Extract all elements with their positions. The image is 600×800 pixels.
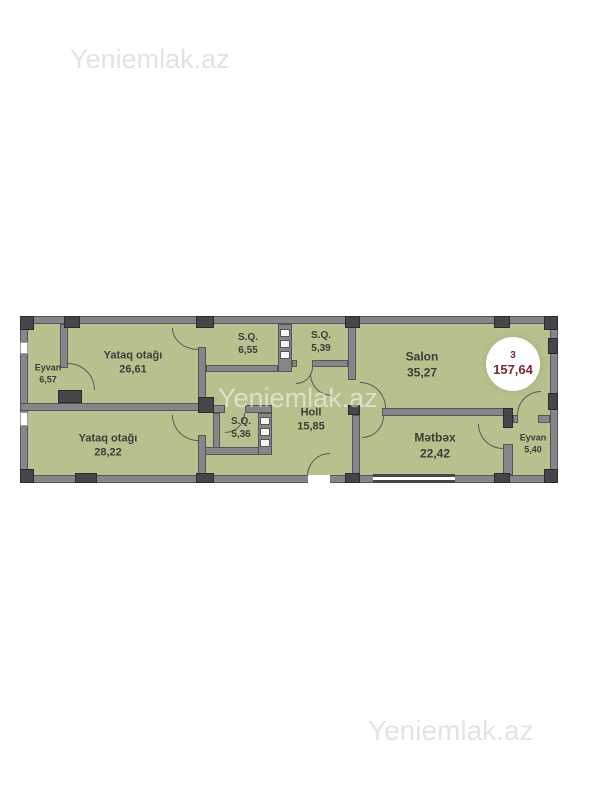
- wall-segment: [352, 415, 360, 475]
- room-label-sq-3: S.Q. 5,36: [231, 415, 251, 441]
- room-name: Eyvan: [520, 432, 547, 444]
- room-label-sq-1: S.Q. 6,55: [238, 331, 258, 357]
- duct-box: [280, 340, 290, 348]
- floor-number: 3: [510, 350, 516, 362]
- room-area: 35,27: [407, 365, 437, 381]
- wall-pillar: [20, 469, 34, 483]
- room-label-eyvan-right: Eyvan 5,40: [520, 432, 547, 455]
- duct-box: [280, 351, 290, 359]
- wall-segment: [503, 444, 513, 475]
- room-area: 15,85: [297, 420, 325, 434]
- wall-pillar: [544, 469, 558, 483]
- room-name: S.Q.: [311, 329, 331, 342]
- window-marker: [20, 412, 28, 426]
- room-area: 6,57: [39, 374, 57, 386]
- wall-segment: [513, 415, 518, 423]
- wall-pillar: [494, 316, 510, 328]
- wall-pillar: [64, 316, 80, 328]
- listing-floorplan-page: { "watermarks": { "top": "Yeniemlak.az",…: [0, 0, 600, 800]
- wall-pillar: [548, 393, 558, 410]
- room-label-bedroom-2: Yataq otağı 28,22: [79, 432, 138, 461]
- room-label-sq-2: S.Q. 5,39: [311, 329, 331, 355]
- room-area: 5,40: [524, 444, 542, 456]
- wall-segment: [292, 360, 297, 367]
- wall-pillar: [198, 397, 214, 413]
- room-name: Yataq otağı: [79, 432, 138, 446]
- room-area: 5,36: [231, 428, 250, 441]
- room-area: 5,39: [311, 342, 330, 355]
- room-area: 26,61: [119, 363, 147, 377]
- room-label-metbex: Mətbəx 22,42: [414, 430, 455, 461]
- wall-pillar: [544, 316, 558, 330]
- room-name: S.Q.: [238, 331, 258, 344]
- wall-segment: [382, 408, 513, 416]
- wall-segment: [538, 415, 550, 423]
- room-label-salon: Salon 35,27: [406, 349, 439, 380]
- wall-segment: [312, 360, 348, 367]
- wall-pillar: [196, 473, 214, 483]
- room-area: 22,42: [420, 446, 450, 462]
- room-name: Yataq otağı: [104, 349, 163, 363]
- room-name: Salon: [406, 349, 439, 365]
- room-area: 6,55: [238, 344, 257, 357]
- room-area: 28,22: [94, 446, 122, 460]
- wall-pillar: [75, 473, 97, 483]
- wall-segment: [348, 324, 356, 380]
- wall-pillar: [196, 316, 214, 328]
- wall-segment: [198, 435, 206, 475]
- total-area-badge: 3 157,64: [486, 337, 540, 391]
- wall-segment: [20, 475, 558, 483]
- wall-segment: [20, 316, 558, 324]
- duct-box: [280, 329, 290, 337]
- room-label-eyvan-left: Eyvan 6,57: [35, 362, 62, 385]
- wall-pillar: [345, 316, 360, 328]
- wall-pillar: [20, 316, 34, 330]
- duct-box: [260, 439, 270, 447]
- watermark-middle: Yeniemlak.az: [218, 383, 378, 414]
- wall-segment: [20, 403, 206, 411]
- window-marker: [373, 474, 455, 483]
- room-name: Eyvan: [35, 362, 62, 374]
- wall-pillar: [58, 390, 82, 403]
- wall-pillar: [548, 338, 558, 354]
- watermark-top: Yeniemlak.az: [70, 44, 230, 75]
- room-name: S.Q.: [231, 415, 251, 428]
- duct-box: [260, 428, 270, 436]
- room-name: Mətbəx: [414, 430, 455, 446]
- wall-pillar: [503, 408, 513, 428]
- wall-pillar: [345, 473, 360, 483]
- wall-segment: [198, 347, 206, 403]
- window-marker: [20, 342, 28, 354]
- entrance-opening: [308, 475, 330, 483]
- total-area-value: 157,64: [493, 362, 533, 378]
- room-label-bedroom-1: Yataq otağı 26,61: [104, 349, 163, 378]
- watermark-bottom: Yeniemlak.az: [368, 715, 534, 747]
- duct-box: [260, 417, 270, 425]
- wall-pillar: [494, 473, 510, 483]
- wall-segment: [206, 365, 278, 372]
